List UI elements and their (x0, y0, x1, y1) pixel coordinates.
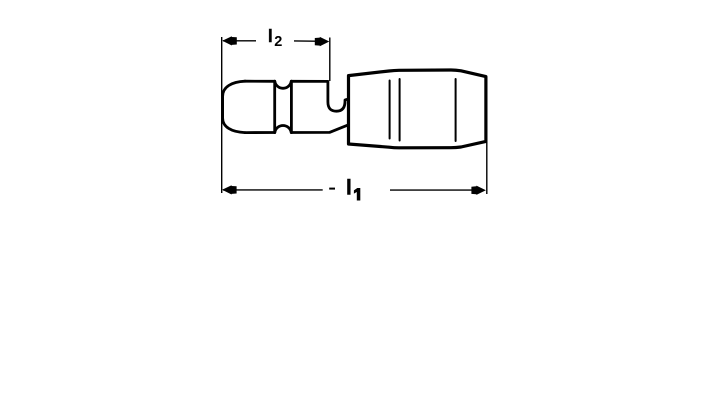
svg-text:2: 2 (274, 34, 282, 50)
svg-text:l: l (346, 177, 352, 200)
svg-text:l: l (268, 26, 273, 46)
